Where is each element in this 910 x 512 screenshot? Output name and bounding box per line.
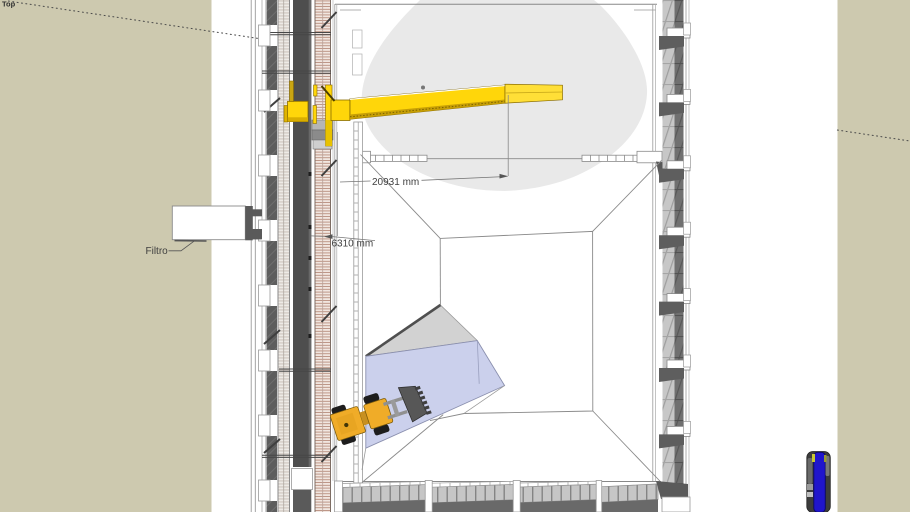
svg-text:Filtro: Filtro xyxy=(146,246,169,257)
svg-text:20931 mm: 20931 mm xyxy=(372,177,419,188)
svg-text:Top: Top xyxy=(2,0,16,9)
svg-text:6310 mm: 6310 mm xyxy=(332,239,374,250)
